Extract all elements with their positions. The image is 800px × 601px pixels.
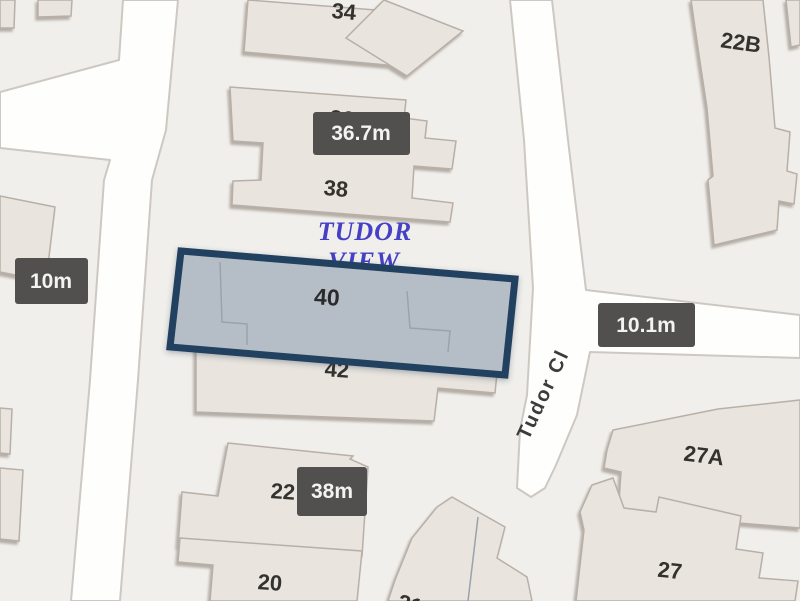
measurement-chip-10-1m-text: 10.1m (616, 314, 676, 337)
label-22: 22 (270, 478, 296, 505)
measurement-chip-10-1m: 10.1m (598, 303, 695, 347)
map-svg: 34 36 38 42 22 20 21 22B 27A 27 TUDOR VI… (0, 0, 800, 601)
measurement-chip-10m-text: 10m (30, 270, 72, 293)
label-34: 34 (331, 0, 358, 25)
measurement-chip-36-7m: 36.7m (313, 112, 410, 155)
label-40: 40 (313, 283, 340, 311)
measurement-chip-38m: 38m (297, 467, 367, 516)
label-38: 38 (323, 175, 350, 202)
label-20: 20 (257, 569, 283, 596)
measurement-chip-38m-text: 38m (311, 480, 353, 503)
measurement-chip-10m: 10m (15, 258, 88, 304)
building-garage-topleft-1 (0, 0, 15, 28)
map-canvas[interactable]: 34 36 38 42 22 20 21 22B 27A 27 TUDOR VI… (0, 0, 800, 601)
measurement-chip-36-7m-text: 36.7m (331, 122, 391, 145)
building-garage-topleft-2 (38, 0, 72, 17)
label-27: 27 (656, 557, 683, 584)
building-garage-left-2 (0, 468, 23, 541)
label-27a: 27A (682, 441, 725, 471)
street-label-tudor-view-line1: TUDOR (318, 217, 413, 246)
building-garage-left-1 (0, 408, 12, 454)
